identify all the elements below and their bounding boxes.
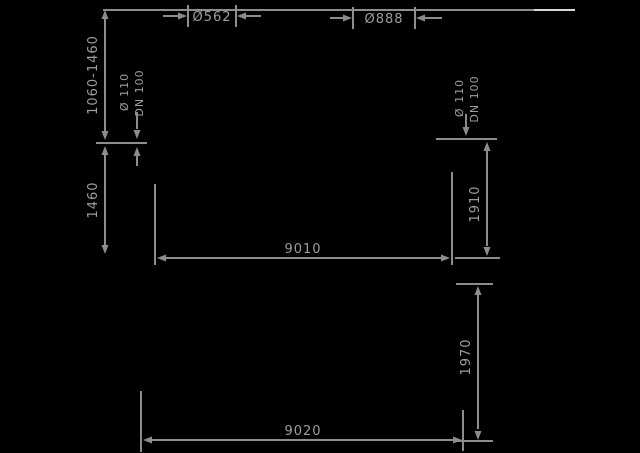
inlet-pipe-diameter-label: Ø 110	[118, 73, 131, 111]
dim-inlet-depth-arrow-up	[102, 146, 109, 155]
dim-length-bottom-arrow-left	[143, 437, 152, 444]
dome-dim-arrow-right	[416, 15, 425, 22]
dim-inlet-depth-label: 1460	[86, 181, 101, 218]
dim-outlet-height-label: 1910	[468, 185, 483, 222]
dim-side-height-label: 1970	[459, 338, 474, 375]
dim-length-top-arrow-left	[157, 255, 166, 262]
dim-inlet-depth-arrow-down	[102, 245, 109, 254]
dim-length-bottom-label: 9020	[284, 424, 321, 439]
dim-length-bottom-arrow-right	[453, 437, 462, 444]
dome-width-label: Ø888	[364, 12, 403, 27]
drawing-canvas: 1060-1460 1460 Ø 110 DN 100 Ø 110 DN 100…	[0, 0, 640, 453]
dim-outlet-height-arrow-up	[484, 142, 491, 151]
dim-side-height-arrow-up	[475, 286, 482, 295]
dome-dim-arrow-left	[343, 15, 352, 22]
dim-length-top-arrow-right	[441, 255, 450, 262]
dim-cover-depth-arrow-down	[102, 131, 109, 140]
dim-cover-depth-arrow-up	[102, 10, 109, 19]
dimension-drawing: 1060-1460 1460 Ø 110 DN 100 Ø 110 DN 100…	[0, 0, 640, 453]
shaft-dim-arrow-right	[237, 13, 246, 20]
dim-outlet-height-arrow-down	[484, 247, 491, 256]
outlet-pipe-diameter-label: Ø 110	[453, 79, 466, 117]
inlet-arrow-down	[134, 130, 141, 139]
outlet-pipe-dn-label: DN 100	[468, 75, 481, 122]
shaft-width-label: Ø562	[192, 10, 231, 25]
outlet-arrow-down	[463, 127, 470, 136]
inlet-pipe-dn-label: DN 100	[133, 69, 146, 116]
shaft-dim-arrow-left	[178, 13, 187, 20]
dim-side-height-arrow-down	[475, 431, 482, 440]
dim-cover-depth-label: 1060-1460	[86, 35, 101, 115]
inlet-arrow-up	[134, 147, 141, 156]
dim-length-top-label: 9010	[284, 242, 321, 257]
